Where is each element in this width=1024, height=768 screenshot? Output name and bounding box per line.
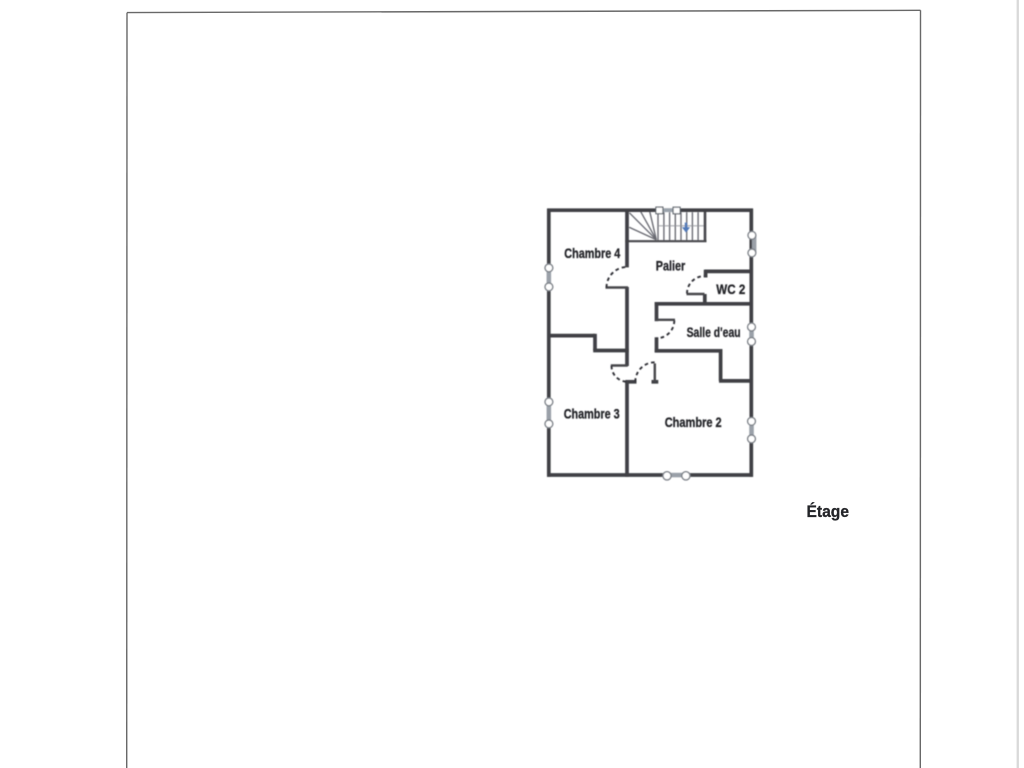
svg-text:WC 2: WC 2	[716, 282, 745, 297]
svg-text:Chambre 4: Chambre 4	[564, 246, 620, 261]
svg-text:Chambre 2: Chambre 2	[665, 415, 722, 430]
svg-text:Étage: Étage	[807, 502, 850, 521]
svg-text:Salle d'eau: Salle d'eau	[687, 325, 741, 340]
svg-text:Palier: Palier	[656, 258, 686, 273]
svg-text:Chambre 3: Chambre 3	[564, 406, 620, 421]
